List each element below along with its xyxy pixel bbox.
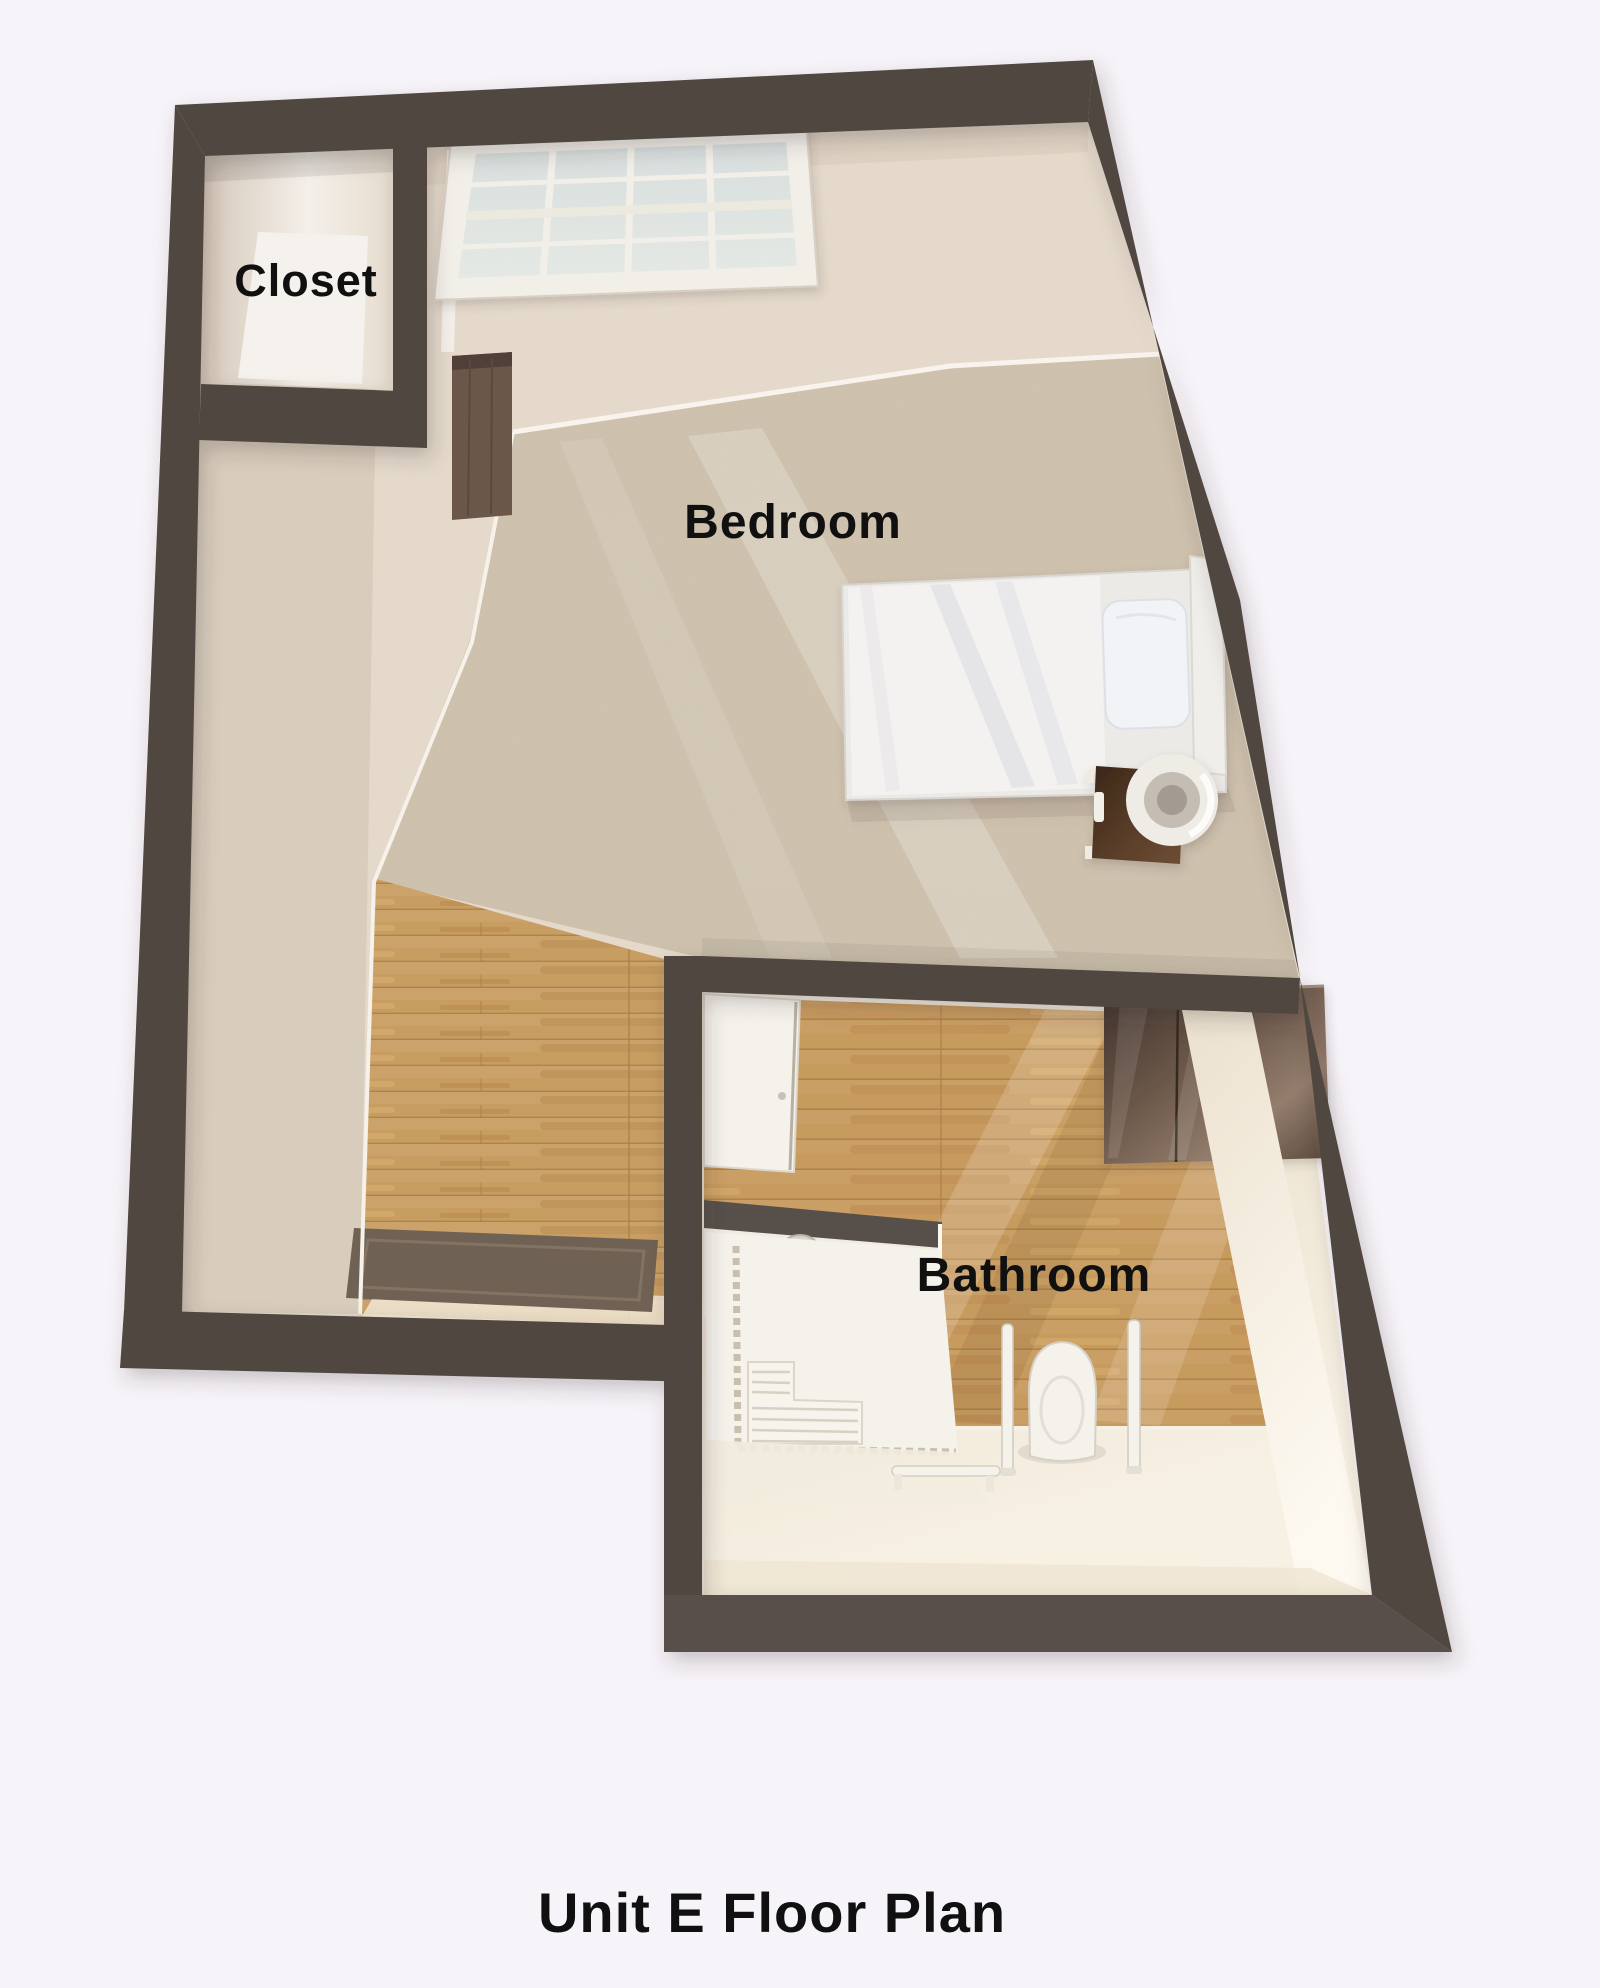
area-rug — [346, 1228, 658, 1312]
page-title: Unit E Floor Plan — [538, 1881, 1006, 1944]
door-panel — [704, 994, 800, 1172]
closet-label: Closet — [234, 255, 378, 306]
door-knob — [778, 1092, 786, 1100]
grab-bar-foot-right — [1126, 1466, 1142, 1474]
bathroom-label: Bathroom — [917, 1249, 1152, 1302]
bathroom-door — [704, 994, 800, 1172]
wall-bathroom-left — [664, 956, 702, 1652]
wall-closet-right — [393, 145, 427, 412]
towel-bar — [892, 1466, 1000, 1476]
nightstand-leg-2 — [1085, 846, 1092, 859]
wardrobe-body — [452, 352, 512, 520]
wardrobe — [452, 352, 512, 520]
floor-plan-page: Closet Bedroom Bathroom Unit E Floor Pla… — [0, 0, 1600, 1988]
towel-bar-post-2 — [986, 1476, 994, 1492]
wall-bottom-light — [664, 1595, 1452, 1652]
wall-closet-bottom — [199, 384, 427, 448]
lamp-bulb — [1157, 785, 1187, 815]
towel-bar-post — [894, 1474, 902, 1490]
bedroom-label: Bedroom — [684, 496, 902, 549]
pillow — [1102, 599, 1190, 730]
floor-plan-svg: Closet Bedroom Bathroom Unit E Floor Pla… — [0, 0, 1600, 1988]
grab-bar-foot-left — [1000, 1468, 1016, 1476]
remote — [1094, 792, 1104, 822]
skylight-window — [434, 120, 818, 300]
grab-bar-right — [1128, 1320, 1140, 1470]
grab-bar-left — [1002, 1324, 1013, 1472]
nightstand-leg — [1087, 770, 1094, 783]
shower-tile-border-v — [736, 1246, 738, 1448]
